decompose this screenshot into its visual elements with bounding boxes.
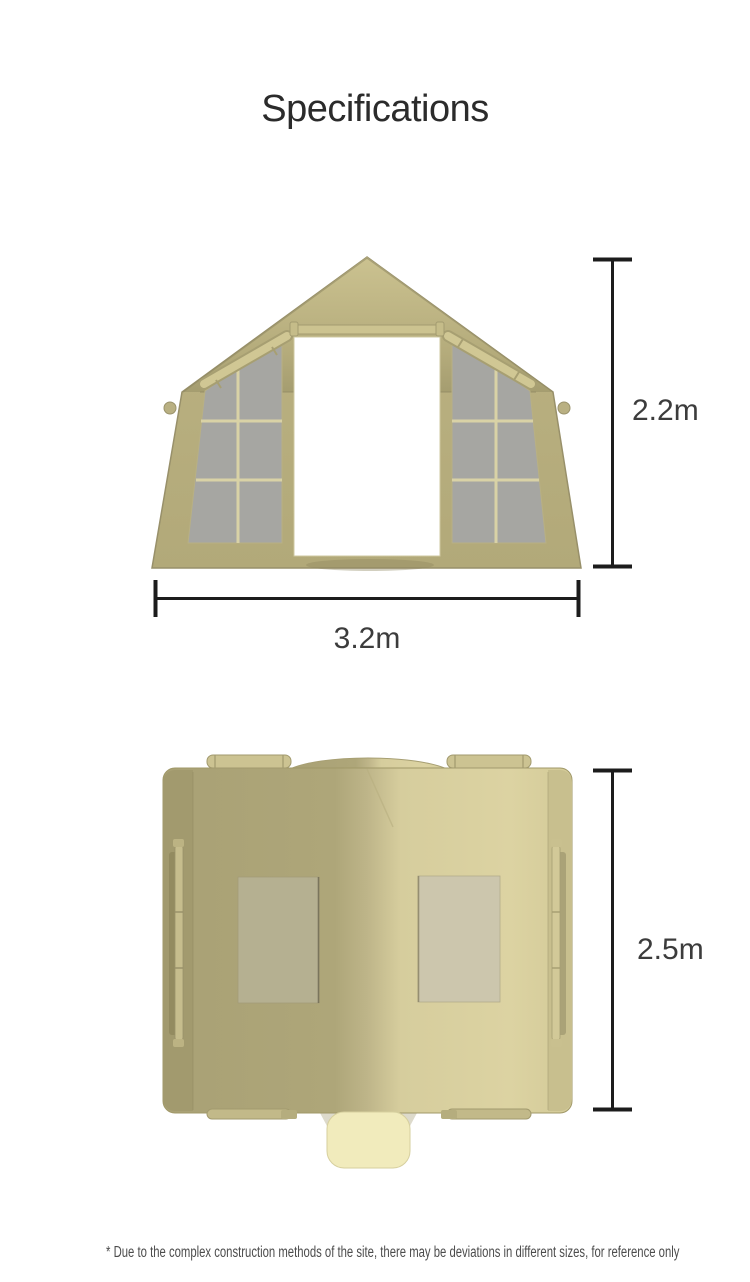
front-height-label: 2.2m [632, 394, 699, 428]
top-depth-dimension [593, 770, 632, 1111]
footnote-text: * Due to the complex construction method… [106, 1244, 679, 1262]
page-root: Specifications [0, 0, 750, 1282]
front-width-dimension [154, 580, 580, 617]
tie-knob-left [164, 402, 176, 414]
skylight-left [238, 877, 319, 1003]
side-hinge-left [169, 839, 184, 1047]
top-tab-left [207, 755, 291, 768]
door-sill-shadow [306, 559, 434, 571]
top-depth-label: 2.5m [637, 933, 704, 967]
top-tab-right [447, 755, 531, 768]
tent-front-view [152, 257, 581, 571]
door-flap-tab [320, 1112, 417, 1168]
tie-knob-right [558, 402, 570, 414]
footnote: * Due to the complex construction method… [0, 1244, 750, 1262]
bottom-tab-right [441, 1109, 531, 1119]
skylight-right [418, 876, 500, 1002]
front-width-label: 3.2m [154, 622, 580, 656]
side-hinge-right [551, 839, 566, 1047]
front-door-opening [294, 337, 440, 556]
tent-top-view [163, 755, 572, 1168]
top-body [163, 768, 572, 1113]
front-height-dimension [593, 259, 632, 568]
bottom-tab-left [207, 1109, 297, 1119]
